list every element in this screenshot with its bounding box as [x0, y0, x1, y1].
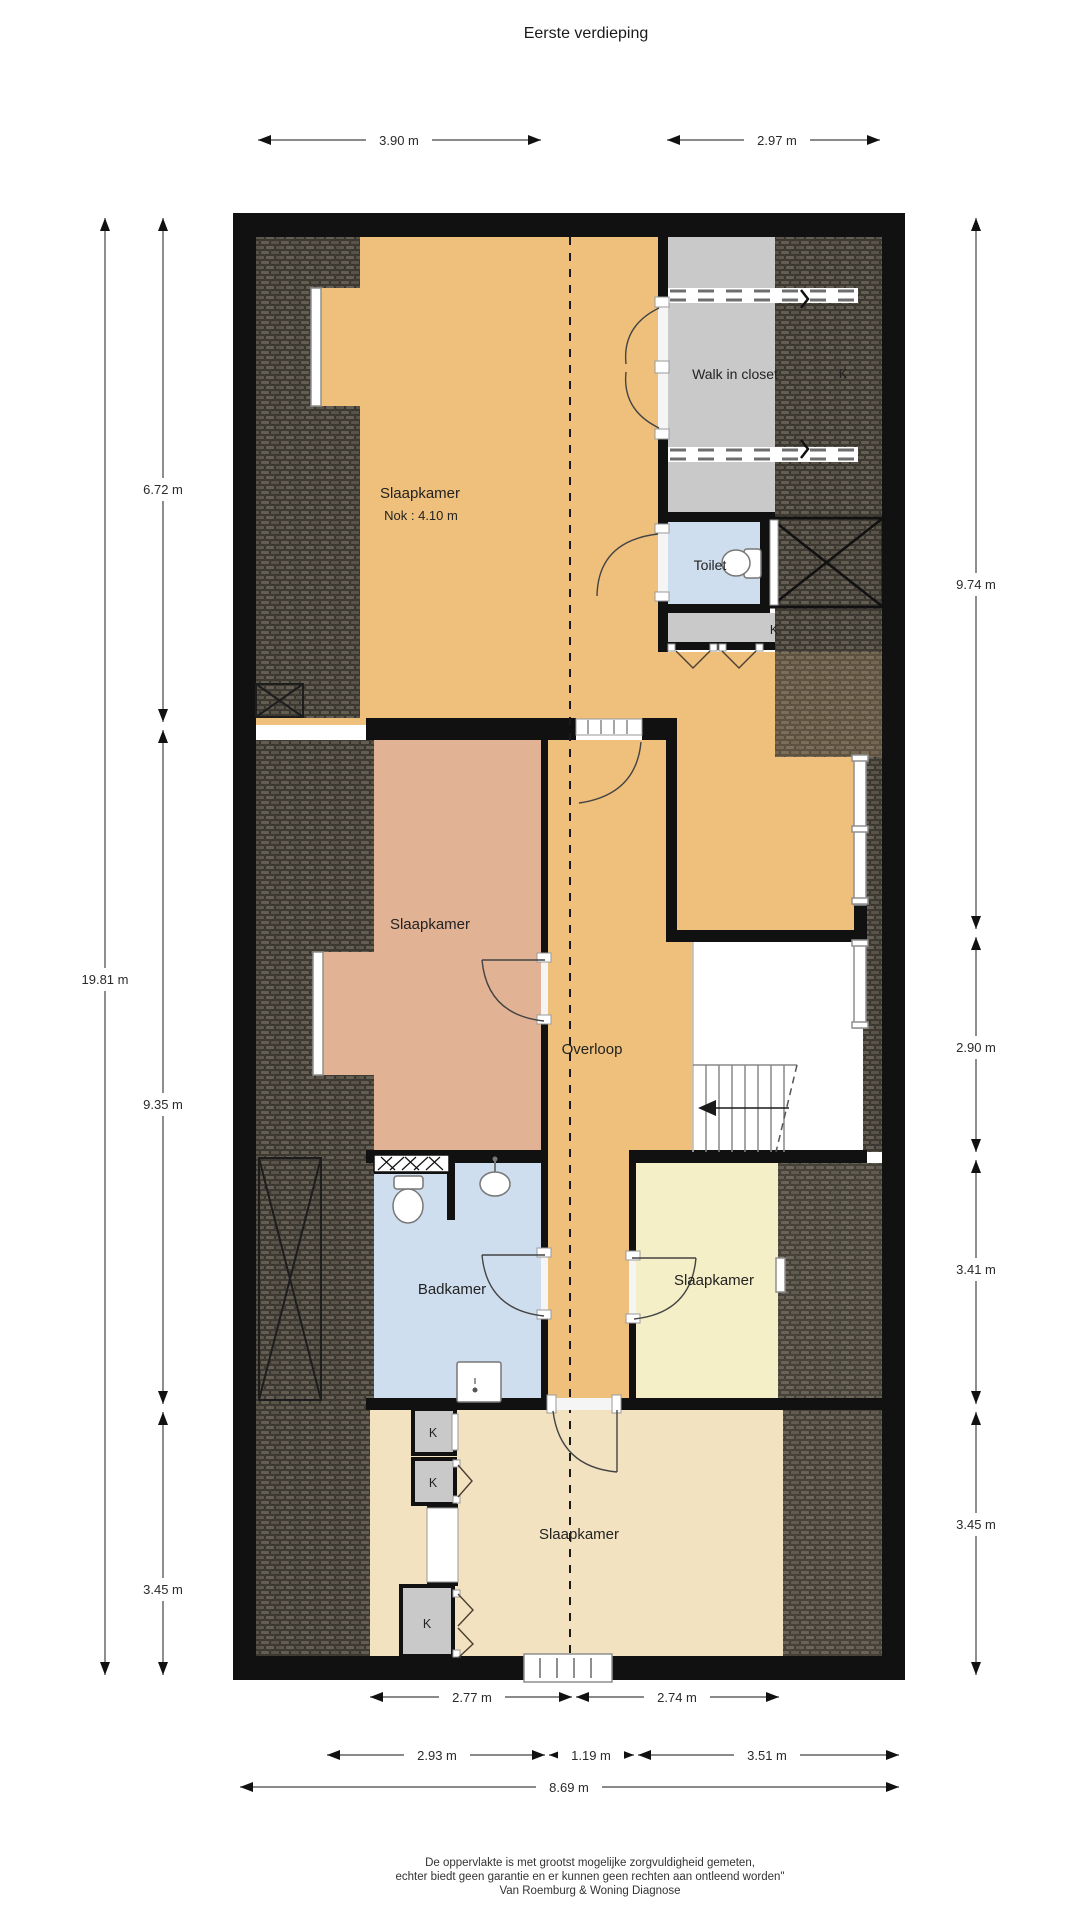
footer-line3: Van Roemburg & Woning Diagnose [499, 1885, 680, 1897]
svg-text:19.81 m: 19.81 m [82, 972, 129, 987]
bathroom-toilet-fixture [393, 1176, 423, 1223]
floor-plan: Slaapkamer Nok : 4.10 m Walk in closet T… [233, 213, 905, 1682]
void-box [427, 1508, 458, 1582]
void-cross-box [770, 518, 883, 607]
label-bathroom: Badkamer [418, 1281, 486, 1298]
svg-text:9.35 m: 9.35 m [143, 1097, 183, 1112]
svg-text:2.77 m: 2.77 m [452, 1690, 492, 1705]
label-bedroom-top-ridge: Nok : 4.10 m [384, 508, 458, 523]
svg-text:2.97 m: 2.97 m [757, 133, 797, 148]
label-bedroom-left: Slaapkamer [390, 916, 470, 933]
svg-text:2.74 m: 2.74 m [657, 1690, 697, 1705]
label-closet-k2: K [429, 1476, 438, 1490]
window-top-left [311, 288, 321, 406]
footer-line1: De oppervlakte is met grootst mogelijke … [425, 1857, 755, 1869]
svg-text:8.69 m: 8.69 m [549, 1780, 589, 1795]
label-closet-k1: K [429, 1426, 438, 1440]
label-bedroom-bottom: Slaapkamer [539, 1526, 619, 1543]
window-right-stairwell [854, 942, 866, 1028]
shower-fixture [457, 1362, 501, 1402]
label-walk-in-closet: Walk in closet [692, 366, 778, 382]
dim-bottom-sec2: 1.19 m [549, 1743, 634, 1766]
toilet-fixture-wc [722, 549, 761, 578]
svg-text:3.45 m: 3.45 m [143, 1582, 183, 1597]
label-closet-k3: K [423, 1617, 432, 1631]
label-closet-roof: K [839, 367, 848, 381]
floor-plan-page: Eerste verdieping [0, 0, 1080, 1920]
label-toilet: Toilet [694, 557, 727, 573]
page-title: Eerste verdieping [524, 25, 649, 42]
svg-text:2.93 m: 2.93 m [417, 1748, 457, 1763]
svg-text:2.90 m: 2.90 m [956, 1040, 996, 1055]
svg-text:1.19 m: 1.19 m [571, 1748, 611, 1763]
svg-text:3.90 m: 3.90 m [379, 133, 419, 148]
svg-text:3.51 m: 3.51 m [747, 1748, 787, 1763]
label-closet-under-toilet: K [770, 623, 779, 637]
svg-text:3.45 m: 3.45 m [956, 1517, 996, 1532]
label-bedroom-right: Slaapkamer [674, 1272, 754, 1289]
floor-plan-canvas: Eerste verdieping [0, 0, 1080, 1920]
svg-text:9.74 m: 9.74 m [956, 577, 996, 592]
room-landing-floor-lower [541, 1150, 636, 1410]
footer-line2: echter biedt geen garantie en er kunnen … [396, 1871, 785, 1883]
roof-hatch-left [255, 235, 374, 1657]
window-bottom [524, 1654, 612, 1682]
bathroom-radiator [374, 1155, 449, 1172]
svg-text:3.41 m: 3.41 m [956, 1262, 996, 1277]
label-landing: Overloop [562, 1041, 623, 1058]
closet-strip-floor [668, 613, 775, 643]
label-bedroom-top: Slaapkamer [380, 485, 460, 502]
svg-text:6.72 m: 6.72 m [143, 482, 183, 497]
window-mid-left [313, 952, 323, 1075]
window-right-small [776, 1258, 785, 1292]
